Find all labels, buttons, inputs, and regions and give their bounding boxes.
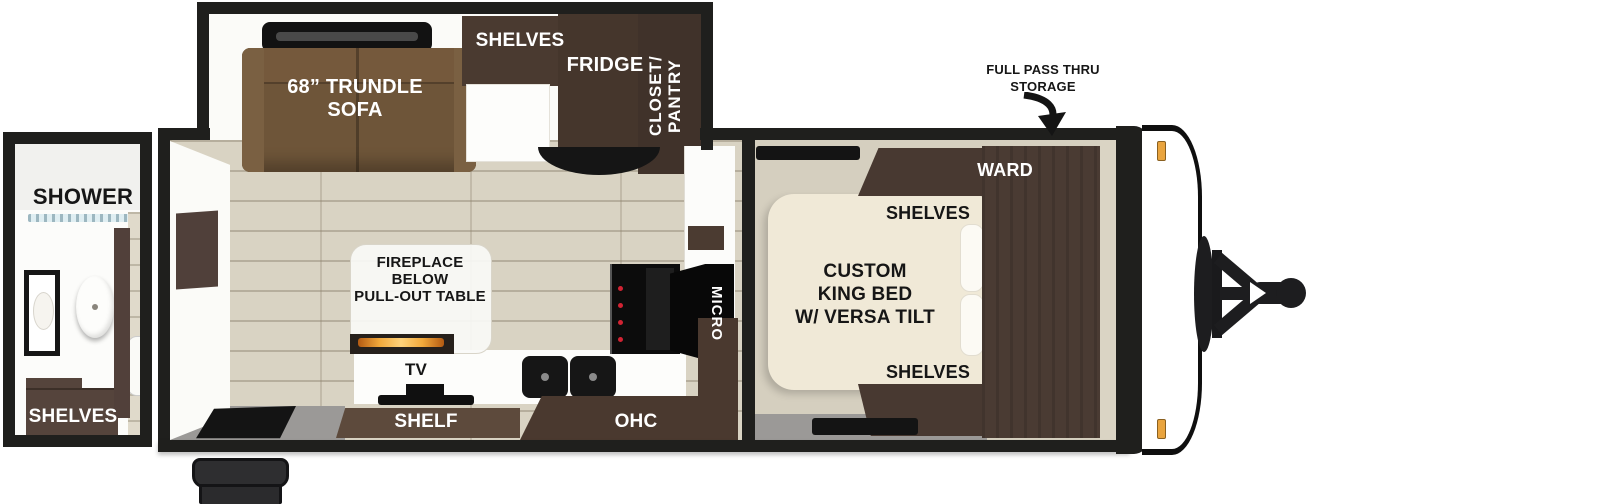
wall-bath-bottom (3, 435, 152, 447)
tv-stand-icon (378, 395, 474, 405)
tv-label: TV (386, 360, 446, 379)
sink-drain-icon (589, 373, 597, 381)
floorplan-diagram: SHOWER SHELVES 68” TRUNDLE SOFA SHELVES … (0, 0, 1600, 504)
cooktop-knob (618, 337, 623, 342)
entry-steps (199, 484, 282, 504)
ohc-label: OHC (584, 411, 688, 433)
bed-shelves-top-label: SHELVES (866, 203, 990, 224)
marker-light-icon (1157, 141, 1166, 161)
interior-wall-lining (170, 141, 230, 440)
wall-main-bottom (158, 440, 1130, 452)
kitchen-shelves-label: SHELVES (462, 30, 578, 52)
bath-shelves-label: SHELVES (12, 406, 134, 428)
window-glass (276, 32, 418, 41)
cooktop-oven (646, 268, 674, 350)
wall-slideout-top (197, 2, 713, 14)
sofa-label: 68” TRUNDLE SOFA (252, 76, 458, 122)
wall-main-left (158, 128, 170, 452)
kitchen-side-box (688, 226, 724, 250)
pillow (960, 224, 984, 292)
sink-drain-icon (92, 304, 98, 310)
bed-shelves-bottom-label: SHELVES (866, 362, 990, 383)
window-icon (812, 418, 918, 435)
cooktop-knob (618, 303, 623, 308)
bed-label: CUSTOM KING BED W/ VERSA TILT (772, 260, 958, 330)
wall-slideout-left (197, 2, 209, 140)
mirror-sink-reflection (33, 292, 54, 330)
wall-bedroom-divider (742, 138, 755, 442)
fridge-label: FRIDGE (553, 54, 657, 77)
wall-slideout-right (701, 2, 713, 150)
shelf-label: SHELF (356, 411, 496, 433)
fireplace-flame-icon (358, 338, 444, 347)
cooktop-knob (618, 320, 623, 325)
ward-label: WARD (950, 160, 1060, 181)
hitch-icon (1192, 232, 1310, 356)
window-icon (756, 146, 860, 160)
pillow (960, 294, 984, 356)
cooktop-knob (618, 286, 623, 291)
sink-drain-icon (541, 373, 549, 381)
wall-panel (176, 211, 218, 290)
closet-pantry-label: CLOSET/ PANTRY (646, 36, 694, 156)
marker-light-icon (1157, 419, 1166, 439)
wardrobe-cabinet (982, 146, 1102, 438)
pass-thru-storage-label: FULL PASS THRU STORAGE (970, 62, 1116, 96)
wall-bath-right (140, 132, 152, 447)
fireplace-label: FIREPLACE BELOW PULL-OUT TABLE (348, 254, 492, 305)
storage-arrow-icon (1008, 92, 1080, 136)
wall-bath-left (3, 132, 15, 447)
shower-glass-icon (28, 214, 142, 222)
micro-label: MICRO (694, 268, 724, 358)
shower-label: SHOWER (18, 184, 148, 209)
wall-bath-top (3, 132, 152, 144)
bath-divider (114, 228, 130, 418)
shelves-counter (466, 84, 550, 162)
